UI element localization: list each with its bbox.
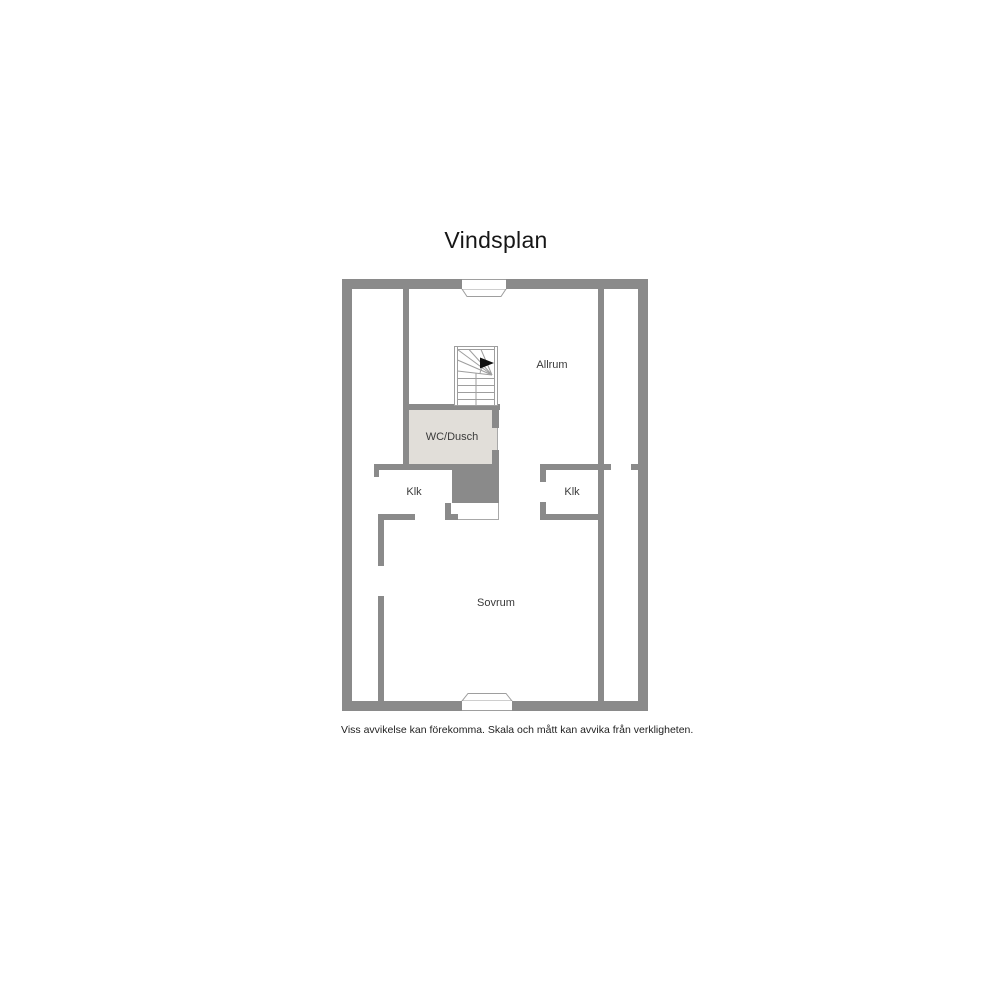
room-label-allrum: Allrum — [536, 359, 567, 371]
room-label-klk-right: Klk — [564, 486, 579, 498]
staircase — [452, 344, 500, 406]
disclaimer-text: Viss avvikelse kan förekomma. Skala och … — [341, 723, 693, 738]
page-title: Vindsplan — [0, 226, 992, 254]
room-label-klk-left: Klk — [406, 486, 421, 498]
wall-nub-outer — [631, 464, 638, 470]
floor-plan: Allrum WC/Dusch Klk Klk Sovrum — [342, 279, 648, 711]
roof-window-bottom-gap — [462, 701, 512, 711]
wall-landing-horizontal — [445, 514, 458, 520]
wall-klk-right-bottom — [540, 514, 598, 520]
roof-window-top-gap — [462, 279, 506, 289]
wall-klk-left-bottom-vertical — [378, 514, 384, 566]
wall-klk-left-top-cap — [374, 464, 379, 477]
floor-plan-page: Vindsplan — [0, 0, 992, 992]
stair-landing — [451, 503, 499, 520]
wc-door-opening — [492, 428, 498, 450]
wall-klk-right-top-stub — [540, 464, 546, 482]
wall-right-vertical — [598, 289, 604, 701]
wall-klk-right-bottom-stub — [540, 502, 546, 520]
wall-wc-bottom — [403, 464, 452, 470]
wall-wc-east-lower — [492, 450, 499, 464]
wall-klk-right-top — [540, 464, 598, 470]
room-label-sovrum: Sovrum — [477, 597, 515, 609]
roof-window-top-icon — [461, 289, 507, 298]
stair-void-block — [452, 464, 499, 503]
roof-window-bottom-icon — [461, 692, 513, 701]
wall-wc-east-upper — [492, 404, 499, 428]
wall-nub-inner — [604, 464, 611, 470]
room-label-wc-dusch: WC/Dusch — [426, 431, 479, 443]
wall-sovrum-left — [378, 596, 384, 701]
